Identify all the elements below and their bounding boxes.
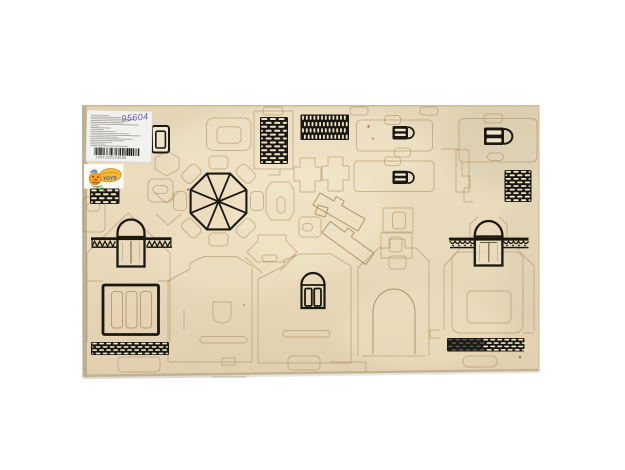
svg-text:2991200243008: 2991200243008 bbox=[95, 155, 126, 160]
svg-text:TOYS: TOYS bbox=[103, 175, 118, 182]
